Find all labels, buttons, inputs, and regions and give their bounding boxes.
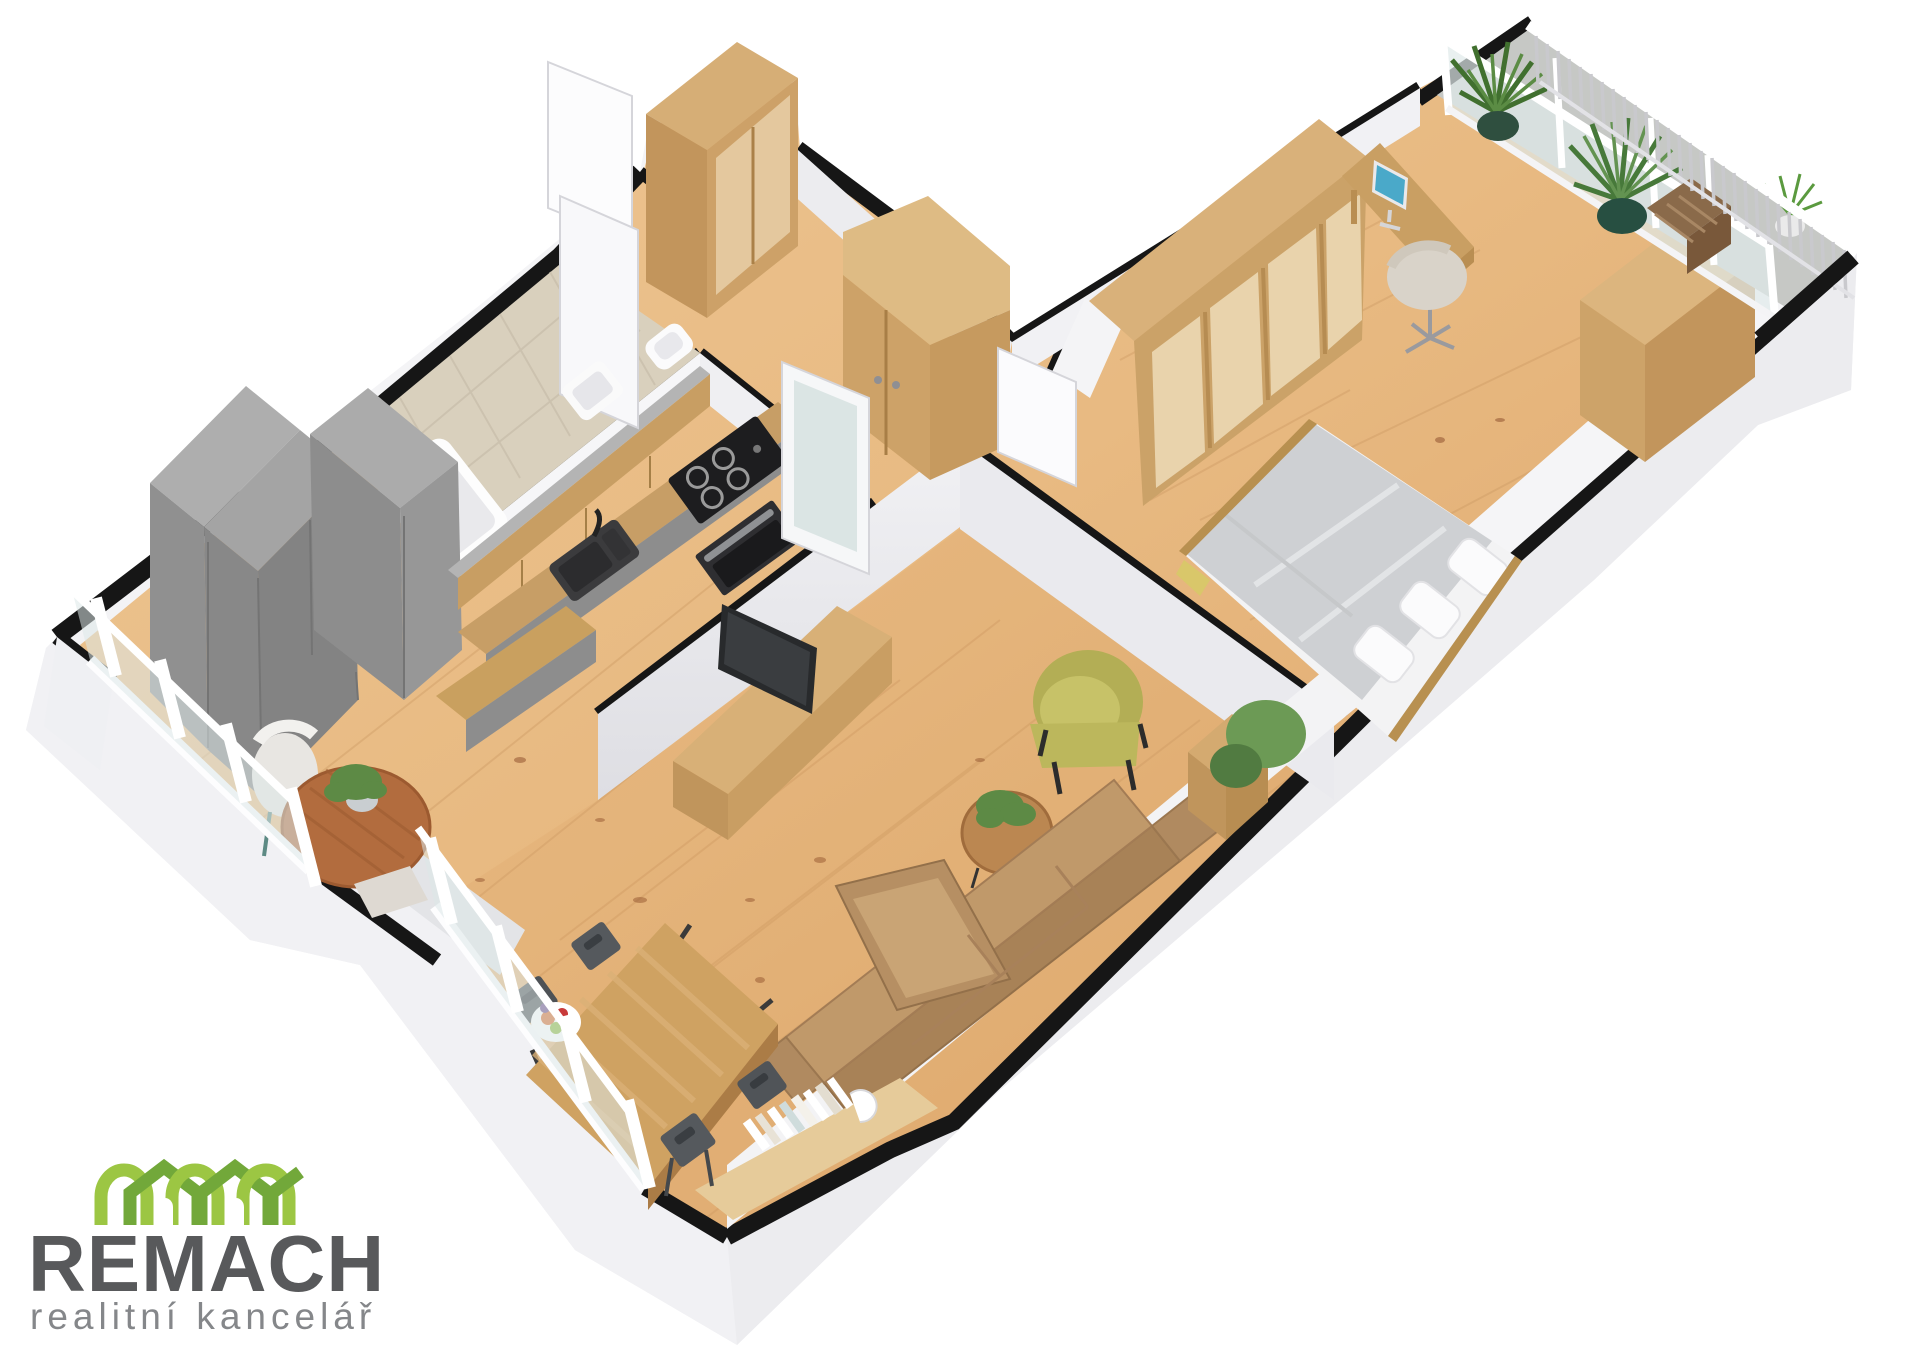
svg-text:REMACH: REMACH — [28, 1219, 385, 1308]
svg-text:realitní kancelář: realitní kancelář — [30, 1296, 376, 1337]
